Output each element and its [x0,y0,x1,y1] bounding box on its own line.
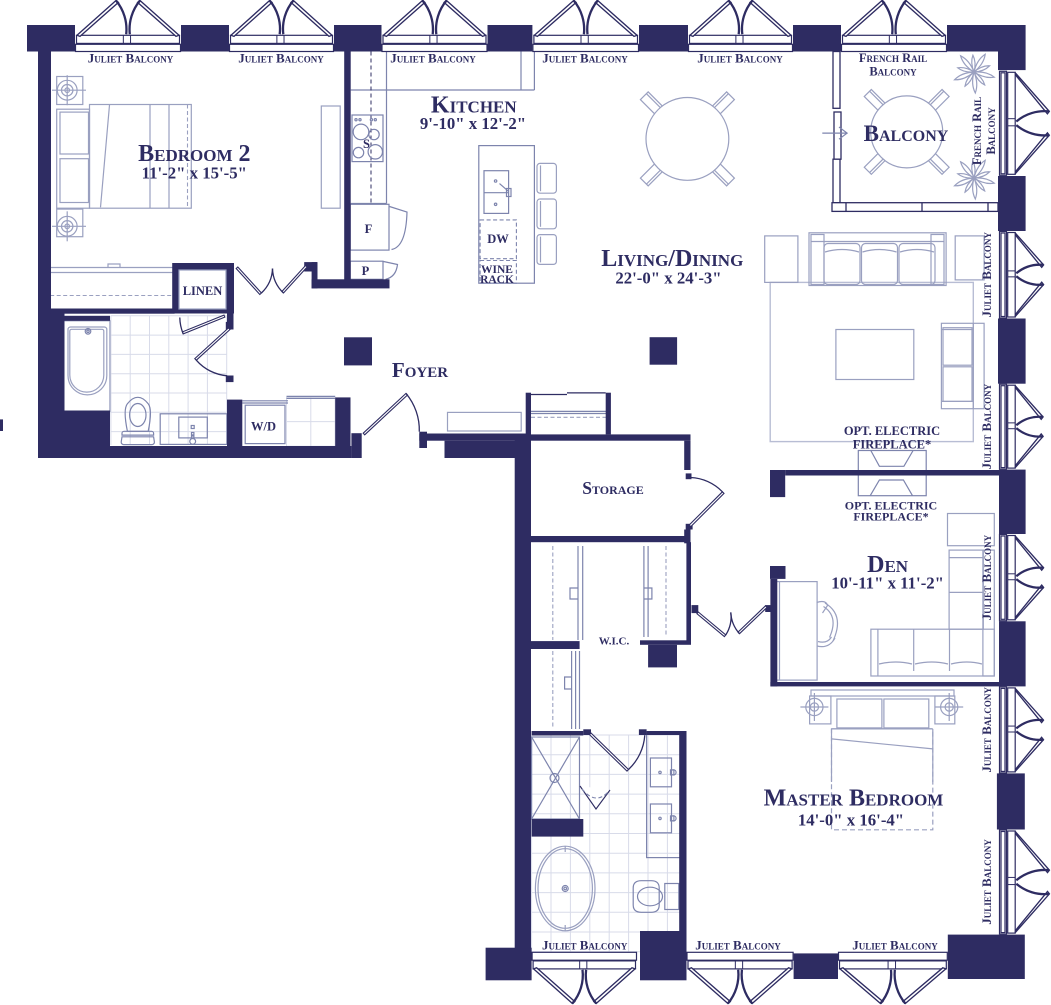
svg-text:Balcony: Balcony [984,107,998,155]
svg-text:Juliet Balcony: Juliet Balcony [979,534,994,620]
svg-text:Juliet Balcony: Juliet Balcony [542,938,628,953]
svg-text:22'-0" x 24'-3": 22'-0" x 24'-3" [615,269,721,288]
svg-text:Foyer: Foyer [392,358,448,382]
svg-text:S: S [363,137,370,151]
svg-text:Balcony: Balcony [869,65,917,79]
svg-text:FIREPLACE*: FIREPLACE* [853,438,931,452]
svg-text:F: F [365,222,373,236]
svg-text:Master Bedroom: Master Bedroom [764,786,944,812]
svg-text:Juliet Balcony: Juliet Balcony [979,383,994,469]
svg-text:Juliet Balcony: Juliet Balcony [979,839,994,925]
svg-text:French Rail: French Rail [859,51,927,65]
svg-text:Juliet Balcony: Juliet Balcony [238,51,324,66]
svg-text:10'-11" x 11'-2": 10'-11" x 11'-2" [831,574,944,593]
svg-text:14'-0" x 16'-4": 14'-0" x 16'-4" [798,811,904,830]
svg-text:Juliet Balcony: Juliet Balcony [852,938,938,953]
svg-text:Balcony: Balcony [864,121,949,146]
svg-text:Juliet Balcony: Juliet Balcony [697,51,783,66]
svg-text:DW: DW [487,232,509,246]
svg-text:W.I.C.: W.I.C. [599,636,630,648]
svg-text:LINEN: LINEN [183,284,223,298]
svg-text:P: P [362,264,370,278]
svg-text:9'-10" x 12'-2": 9'-10" x 12'-2" [420,114,526,133]
svg-text:11'-2" x 15'-5": 11'-2" x 15'-5" [142,164,247,183]
svg-text:French Rail: French Rail [970,97,984,165]
svg-text:OPT. ELECTRIC: OPT. ELECTRIC [844,424,940,438]
svg-text:Juliet Balcony: Juliet Balcony [88,51,174,66]
svg-text:FIREPLACE*: FIREPLACE* [853,510,928,524]
svg-text:Juliet Balcony: Juliet Balcony [979,232,994,318]
svg-text:RACK: RACK [480,274,514,286]
svg-text:Juliet Balcony: Juliet Balcony [390,51,476,66]
svg-text:Juliet Balcony: Juliet Balcony [979,687,994,773]
svg-text:W/D: W/D [251,420,276,434]
svg-text:Juliet Balcony: Juliet Balcony [542,51,628,66]
svg-text:Storage: Storage [582,478,644,498]
svg-text:Juliet Balcony: Juliet Balcony [695,938,781,953]
